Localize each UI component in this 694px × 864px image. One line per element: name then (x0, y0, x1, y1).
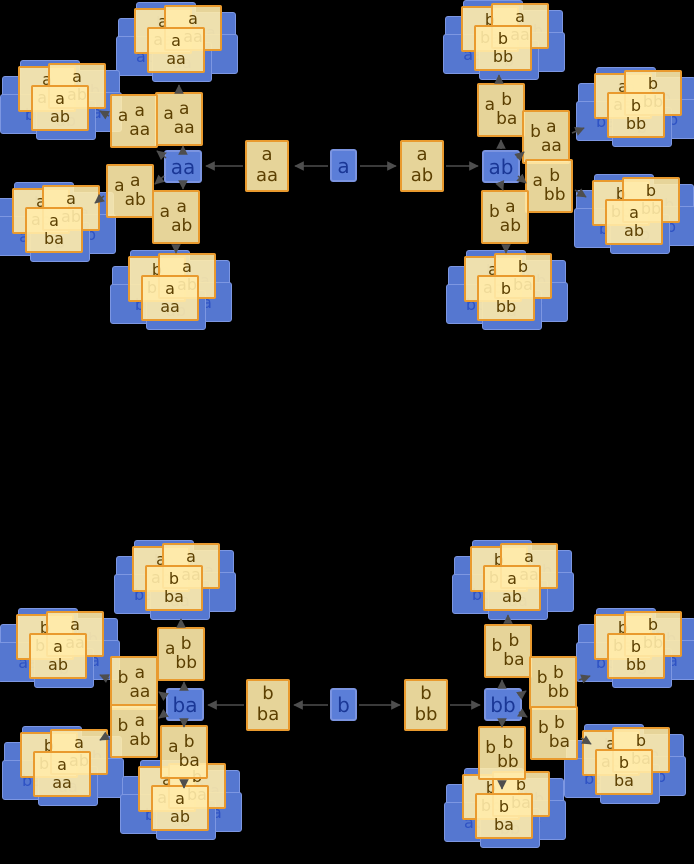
card-top-label: a (188, 10, 198, 28)
extra-letter: a (532, 172, 542, 191)
extra-letter: a (485, 96, 495, 115)
card-label-pair: bba (503, 632, 524, 669)
card-top-label: b (648, 75, 658, 93)
card-top-label: a (130, 172, 140, 191)
card-label-pair: bbb (548, 664, 570, 701)
extra-letter: b (538, 719, 549, 738)
card-bottom-label: bb (497, 753, 519, 772)
card-top-label: a (165, 280, 175, 298)
card-top-label: a (72, 68, 82, 86)
transition-card: baab (110, 704, 158, 758)
node-label: a (337, 154, 349, 178)
card-bottom-label: ab (500, 217, 521, 236)
stack-card: aab (29, 633, 87, 679)
transition-card: bbbb (529, 656, 577, 710)
stack-card: bbb (607, 633, 665, 679)
node-label: b (337, 693, 350, 717)
card-label-pair: bbb (544, 167, 566, 204)
card-top-label: a (505, 198, 515, 217)
card-top-label: b (648, 616, 658, 634)
edge-card: bbb (404, 679, 448, 731)
card-label-pair: aab (500, 198, 521, 235)
card-bottom-label: ba (257, 705, 279, 726)
card-top-label: a (53, 638, 63, 656)
card-top-label: b (631, 638, 641, 656)
card-top-label: b (501, 91, 512, 110)
stack-card: bba (595, 749, 653, 795)
card-bottom-label: bb (175, 654, 197, 673)
transition-card: abbb (157, 627, 205, 681)
stack-card: bbb (477, 275, 535, 321)
card-top-label: b (553, 664, 564, 683)
card-bottom-label: bb (626, 115, 646, 133)
stack-card: bba (145, 565, 203, 611)
stack-card: bbb (474, 25, 532, 71)
card-label-pair: aab (171, 198, 192, 235)
node-aa: aa (164, 150, 202, 183)
card-bottom-label: ab (171, 217, 192, 236)
card-top-label: a (182, 258, 192, 276)
transition-card: bbbb (478, 726, 526, 780)
extra-letter: a (168, 738, 178, 757)
card-bottom-label: ba (44, 230, 64, 248)
card-top-label: b (169, 570, 179, 588)
stack-card: bbb (607, 92, 665, 138)
transition-card: aaaa (110, 94, 158, 148)
transition-card: abba (160, 725, 208, 779)
card-bottom-label: bb (415, 705, 438, 726)
card-bottom-label: ab (502, 588, 522, 606)
transition-card: aaaa (155, 92, 203, 146)
card-top-label: a (135, 664, 145, 683)
card-top-label: b (502, 734, 513, 753)
transition-card: aaab (152, 190, 200, 244)
card-top-label: b (518, 258, 528, 276)
stack-card: aab (151, 785, 209, 831)
card-bottom-label: ab (411, 166, 433, 187)
extra-letter: b (118, 669, 129, 688)
card-bottom-label: aa (166, 50, 186, 68)
card-top-label: b (508, 632, 519, 651)
card-label-pair: bba (496, 91, 517, 128)
card-label-pair: aaa (129, 102, 150, 139)
card-bottom-label: ba (179, 752, 200, 771)
card-bottom-label: aa (129, 683, 150, 702)
card-label-pair: bba (179, 733, 200, 770)
transition-card: abba (477, 83, 525, 137)
card-bottom-label: ba (494, 816, 514, 834)
arrow (155, 176, 164, 184)
card-top-label: a (186, 548, 196, 566)
node-ba: ba (166, 688, 204, 721)
card-top-label: a (57, 756, 67, 774)
card-top-label: a (175, 790, 185, 808)
card-label-pair: aab (129, 712, 150, 749)
card-bottom-label: aa (52, 774, 72, 792)
card-label-pair: aaa (129, 664, 150, 701)
card-top-label: b (646, 182, 656, 200)
card-bottom-label: bb (626, 656, 646, 674)
card-top-label: a (179, 100, 189, 119)
card-bottom-label: ab (624, 222, 644, 240)
card-top-label: b (499, 798, 509, 816)
node-label: ba (173, 693, 198, 717)
extra-letter: a (160, 203, 170, 222)
card-label-pair: bbb (497, 734, 519, 771)
card-top-label: a (629, 204, 639, 222)
card-top-label: b (554, 714, 565, 733)
card-bottom-label: ab (170, 808, 190, 826)
card-bottom-label: bb (544, 186, 566, 205)
card-bottom-label: ba (503, 651, 524, 670)
card-bottom-label: bb (548, 683, 570, 702)
card-label-pair: aaa (174, 100, 195, 137)
transition-card: baaa (110, 656, 158, 710)
extra-letter: a (163, 105, 173, 124)
card-top-label: b (549, 167, 560, 186)
card-top-label: a (171, 32, 181, 50)
extra-letter: b (117, 717, 128, 736)
word-tree-diagram: aaabaaabaaaaaaaaaaaaabaaababaaaaabaababa… (0, 0, 694, 864)
edge-card: aaa (245, 140, 289, 192)
transition-card: bbba (484, 624, 532, 678)
stack-card: aaa (141, 275, 199, 321)
extra-letter: b (485, 739, 496, 758)
stack-card: aab (483, 565, 541, 611)
card-bottom-label: aa (256, 166, 278, 187)
extra-letter: a (114, 177, 124, 196)
extra-letter: b (489, 203, 500, 222)
card-label-pair: bba (549, 714, 570, 751)
extra-letter: b (537, 669, 548, 688)
card-top-label: b (184, 733, 195, 752)
card-top-label: b (501, 280, 511, 298)
card-top-label: a (49, 212, 59, 230)
card-bottom-label: ab (50, 108, 70, 126)
arrow (159, 692, 166, 697)
node-label: aa (171, 155, 196, 179)
extra-letter: b (491, 637, 502, 656)
node-bb: bb (484, 688, 522, 721)
card-bottom-label: ba (164, 588, 184, 606)
node-a: a (330, 149, 357, 182)
card-top-label: a (135, 712, 145, 731)
card-top-label: a (134, 102, 144, 121)
stack-card: aaa (147, 27, 205, 73)
transition-card: baaa (522, 110, 570, 164)
card-bottom-label: ab (48, 656, 68, 674)
card-top-label: a (416, 145, 427, 166)
card-top-label: b (619, 754, 629, 772)
card-bottom-label: ba (614, 772, 634, 790)
card-top-label: b (262, 684, 273, 705)
transition-card: baab (481, 190, 529, 244)
card-bottom-label: aa (541, 137, 562, 156)
card-label-pair: aaa (541, 118, 562, 155)
node-b: b (330, 688, 357, 721)
card-bottom-label: ba (496, 110, 517, 129)
card-bottom-label: ba (549, 733, 570, 752)
card-top-label: a (55, 90, 65, 108)
card-top-label: b (181, 635, 192, 654)
card-top-label: a (176, 198, 186, 217)
transition-card: bbba (530, 706, 578, 760)
card-top-label: b (631, 97, 641, 115)
stack-card: aab (605, 199, 663, 245)
card-top-label: a (524, 548, 534, 566)
arrow (159, 713, 166, 718)
extra-letter: a (118, 107, 128, 126)
card-bottom-label: bb (493, 48, 513, 66)
node-ab: ab (482, 150, 520, 183)
card-top-label: b (498, 30, 508, 48)
card-top-label: a (261, 145, 272, 166)
card-top-label: a (70, 616, 80, 634)
transition-card: abbb (525, 159, 573, 213)
card-label-pair: aab (125, 172, 146, 209)
card-top-label: b (636, 732, 646, 750)
card-bottom-label: aa (160, 298, 180, 316)
edge-card: aab (400, 140, 444, 192)
card-top-label: a (74, 734, 84, 752)
card-bottom-label: ab (125, 191, 146, 210)
card-top-label: a (66, 190, 76, 208)
card-top-label: a (515, 8, 525, 26)
extra-letter: b (530, 123, 541, 142)
card-bottom-label: ab (129, 731, 150, 750)
card-bottom-label: aa (174, 119, 195, 138)
stack-card: aba (25, 207, 83, 253)
card-bottom-label: bb (496, 298, 516, 316)
card-label-pair: bbb (175, 635, 197, 672)
card-top-label: a (546, 118, 556, 137)
stack-card: aab (31, 85, 89, 131)
card-top-label: a (507, 570, 517, 588)
extra-letter: a (165, 640, 175, 659)
card-bottom-label: aa (129, 121, 150, 140)
node-label: bb (490, 693, 515, 717)
stack-card: aaa (33, 751, 91, 797)
stack-card: bba (475, 793, 533, 839)
card-top-label: b (420, 684, 431, 705)
edge-card: bba (246, 679, 290, 731)
node-label: ab (489, 155, 514, 179)
transition-card: aaab (106, 164, 154, 218)
